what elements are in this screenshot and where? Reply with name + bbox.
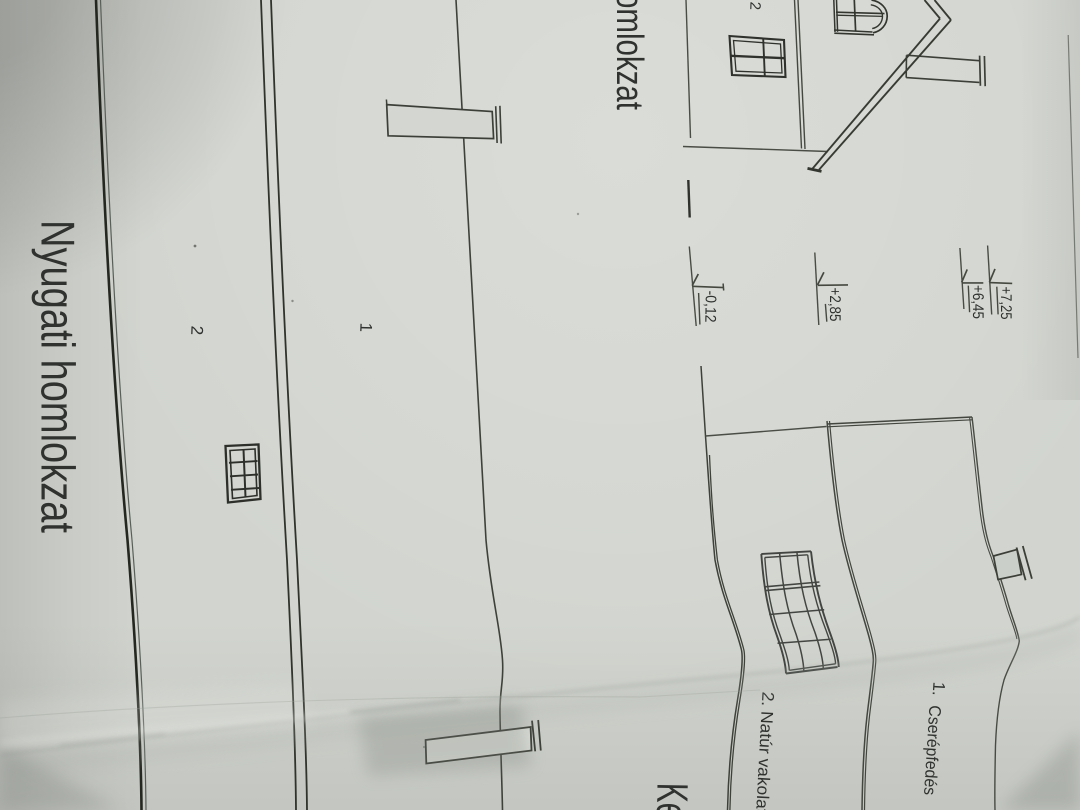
svg-text:Nyugati homlokzat: Nyugati homlokzat	[31, 220, 84, 533]
svg-text:+6,45: +6,45	[969, 285, 986, 319]
svg-text:2: 2	[746, 1, 763, 10]
svg-text:2: 2	[187, 325, 206, 335]
svg-text:Kele: Kele	[646, 782, 696, 810]
svg-text:+7,25: +7,25	[997, 287, 1014, 320]
svg-text:1: 1	[356, 322, 375, 332]
svg-text:-0,12: -0,12	[701, 290, 719, 322]
svg-text:1.: 1.	[929, 681, 949, 696]
svg-text:omlokzat: omlokzat	[608, 0, 650, 110]
svg-text:+2,85: +2,85	[826, 288, 843, 322]
